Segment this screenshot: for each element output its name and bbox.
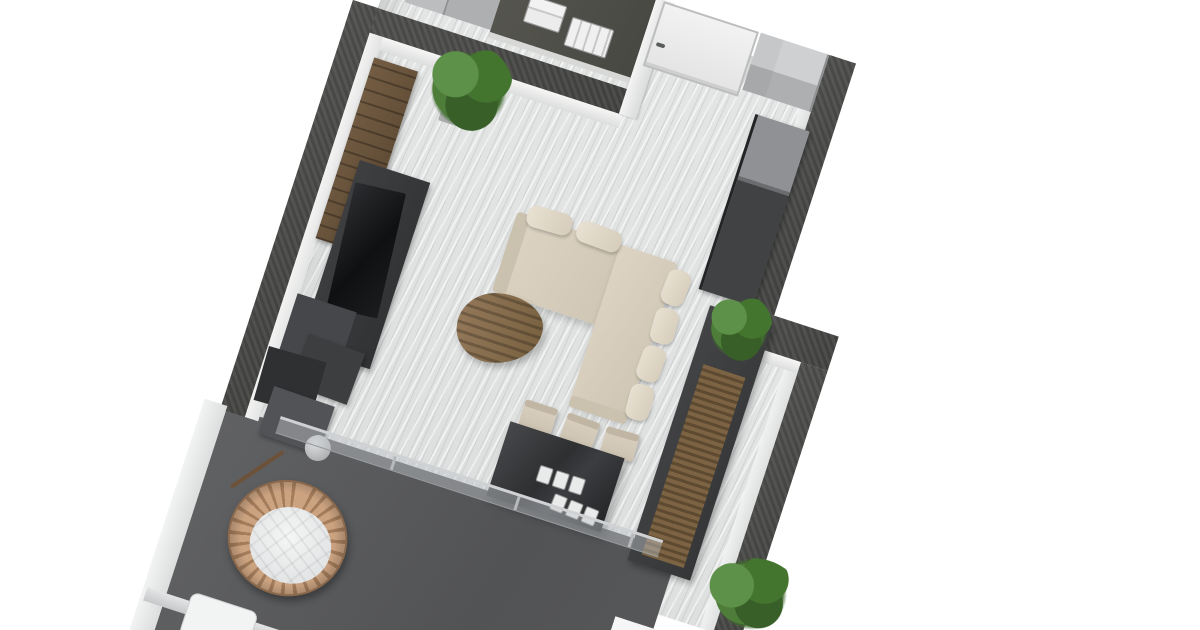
apartment-plan [100,0,895,630]
glass-mullion [390,456,397,470]
glass-mullion [513,496,520,510]
floor-plan-render [0,0,1200,630]
balcony-plant [703,558,799,630]
glass-mullion [628,533,635,547]
